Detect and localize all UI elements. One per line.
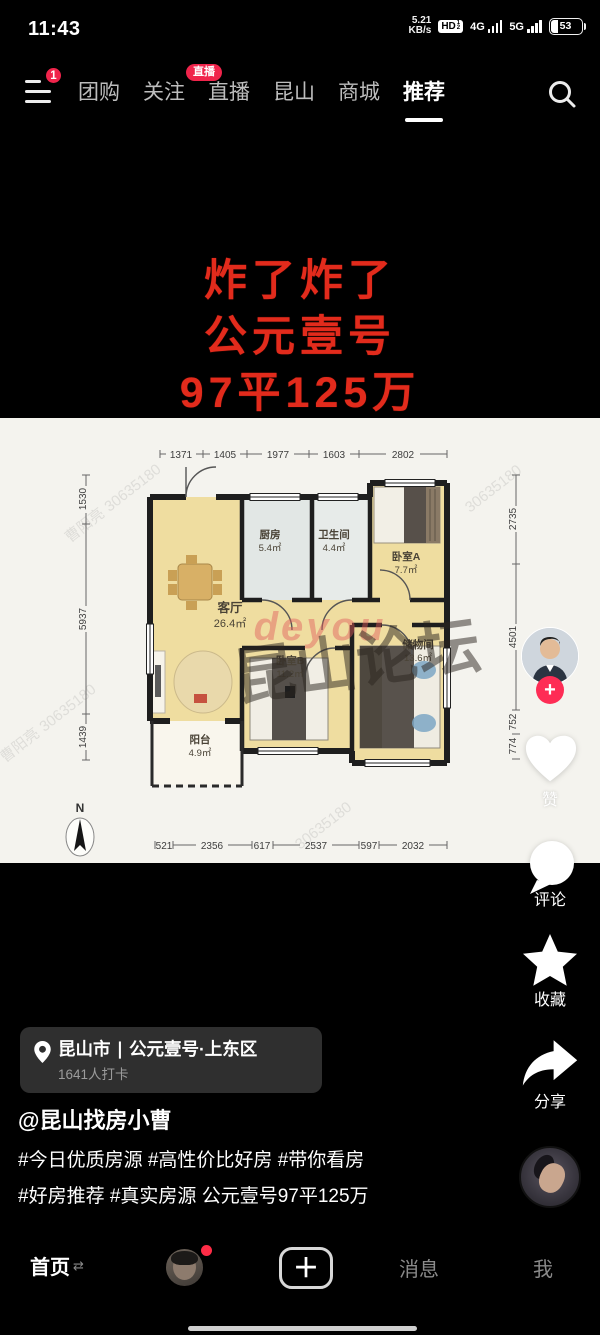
status-time: 11:43 — [28, 18, 81, 41]
hd-label: HD — [441, 21, 455, 32]
favorite-label: 收藏 — [505, 986, 595, 1010]
home-swap-icon: ⇄ — [73, 1258, 84, 1274]
share-icon[interactable] — [521, 1036, 579, 1093]
svg-text:752: 752 — [508, 713, 519, 730]
sim1-type: 4G — [470, 21, 485, 33]
share-label: 分享 — [505, 1088, 595, 1112]
caption-line-2[interactable]: #好房推荐 #真实房源 公元壹号97平125万 — [18, 1179, 488, 1215]
sim2-type: 5G — [509, 21, 524, 33]
tab-mall[interactable]: 商城 — [338, 76, 380, 106]
svg-text:曹阳亮30635180: 曹阳亮30635180 — [0, 681, 99, 766]
svg-text:1371: 1371 — [170, 450, 193, 461]
svg-text:2802: 2802 — [392, 450, 415, 461]
tab-group-buy[interactable]: 团购 — [78, 76, 120, 106]
svg-text:1530: 1530 — [78, 487, 89, 510]
dims-bottom: 521 2356 617 2537 597 2032 — [156, 841, 425, 852]
battery-percent: 53 — [560, 20, 572, 32]
hd-voice-icon: HD 1 2 — [438, 20, 463, 33]
tab-recommend[interactable]: 推荐 — [403, 76, 445, 106]
title-line-2: 公元壹号 — [0, 309, 600, 365]
svg-text:617: 617 — [254, 841, 271, 852]
svg-text:521: 521 — [156, 841, 173, 852]
location-card[interactable]: 昆山市 ∣ 公元壹号·上东区 1641人打卡 — [20, 1027, 322, 1093]
svg-text:1405: 1405 — [214, 450, 237, 461]
music-disc[interactable] — [519, 1146, 581, 1208]
svg-text:597: 597 — [361, 841, 378, 852]
svg-text:2735: 2735 — [508, 507, 519, 530]
svg-text:N: N — [76, 801, 85, 815]
nav-home[interactable]: 首页⇄ — [30, 1251, 84, 1280]
network-speed: 5.21 KB/s — [409, 16, 432, 36]
author-username[interactable]: @昆山找房小曹 — [18, 1103, 171, 1135]
home-indicator — [188, 1326, 417, 1331]
signal-5g-icon: 5G — [509, 20, 541, 33]
location-pin-icon — [34, 1041, 51, 1068]
menu-badge: 1 — [44, 66, 63, 85]
tab-kunshan[interactable]: 昆山 — [273, 76, 315, 106]
top-tab-bar: 团购 关注 直播 昆山 商城 推荐 — [78, 76, 445, 106]
dims-right: 2735 4501 752 774 — [508, 507, 519, 754]
favorite-icon[interactable] — [522, 933, 578, 992]
nav-avatar-badge — [201, 1245, 212, 1256]
hd-sim2: 2 — [457, 26, 460, 31]
battery-icon: 53 — [549, 18, 587, 35]
svg-text:1603: 1603 — [323, 450, 346, 461]
tab-following[interactable]: 关注 — [143, 76, 185, 106]
speed-unit: KB/s — [409, 26, 432, 36]
compass-north-icon: N — [66, 801, 94, 856]
live-badge: 直播 — [186, 64, 222, 81]
search-icon[interactable] — [546, 78, 578, 115]
menu-icon[interactable] — [25, 80, 51, 110]
like-label: 赞 — [505, 786, 595, 810]
nav-messages[interactable]: 消息 — [399, 1253, 439, 1282]
nav-create-button[interactable]: ＋ — [279, 1247, 333, 1289]
nav-me[interactable]: 我 — [533, 1253, 553, 1282]
dims-top: 1371 1405 1977 1603 2802 — [170, 450, 415, 461]
svg-text:4501: 4501 — [508, 625, 519, 648]
follow-button[interactable]: + — [536, 676, 564, 704]
svg-text:2032: 2032 — [402, 841, 425, 852]
caption-line-1[interactable]: #今日优质房源 #高性价比好房 #带你看房 — [18, 1143, 488, 1179]
svg-text:5937: 5937 — [78, 607, 89, 630]
title-line-3: 97平125万 — [0, 365, 600, 421]
svg-text:1439: 1439 — [78, 725, 89, 748]
svg-text:2356: 2356 — [201, 841, 224, 852]
signal-4g-icon: 4G — [470, 20, 502, 33]
app-screen: 11:43 5.21 KB/s HD 1 2 4G 5G 53 1 — [0, 0, 600, 1335]
like-icon[interactable] — [522, 733, 580, 790]
nav-friend-avatar[interactable] — [166, 1249, 203, 1286]
video-title: 炸了炸了 公元壹号 97平125万 — [0, 253, 600, 421]
svg-text:1977: 1977 — [267, 450, 290, 461]
location-text: 昆山市 ∣ 公元壹号·上东区 — [58, 1037, 308, 1061]
caption-text: #今日优质房源 #高性价比好房 #带你看房 #好房推荐 #真实房源 公元壹号97… — [18, 1143, 488, 1215]
comment-label: 评论 — [505, 886, 595, 910]
svg-text:774: 774 — [508, 737, 519, 754]
location-checkins: 1641人打卡 — [58, 1063, 308, 1083]
title-line-1: 炸了炸了 — [0, 253, 600, 309]
status-icons: 5.21 KB/s HD 1 2 4G 5G 53 — [409, 16, 586, 36]
